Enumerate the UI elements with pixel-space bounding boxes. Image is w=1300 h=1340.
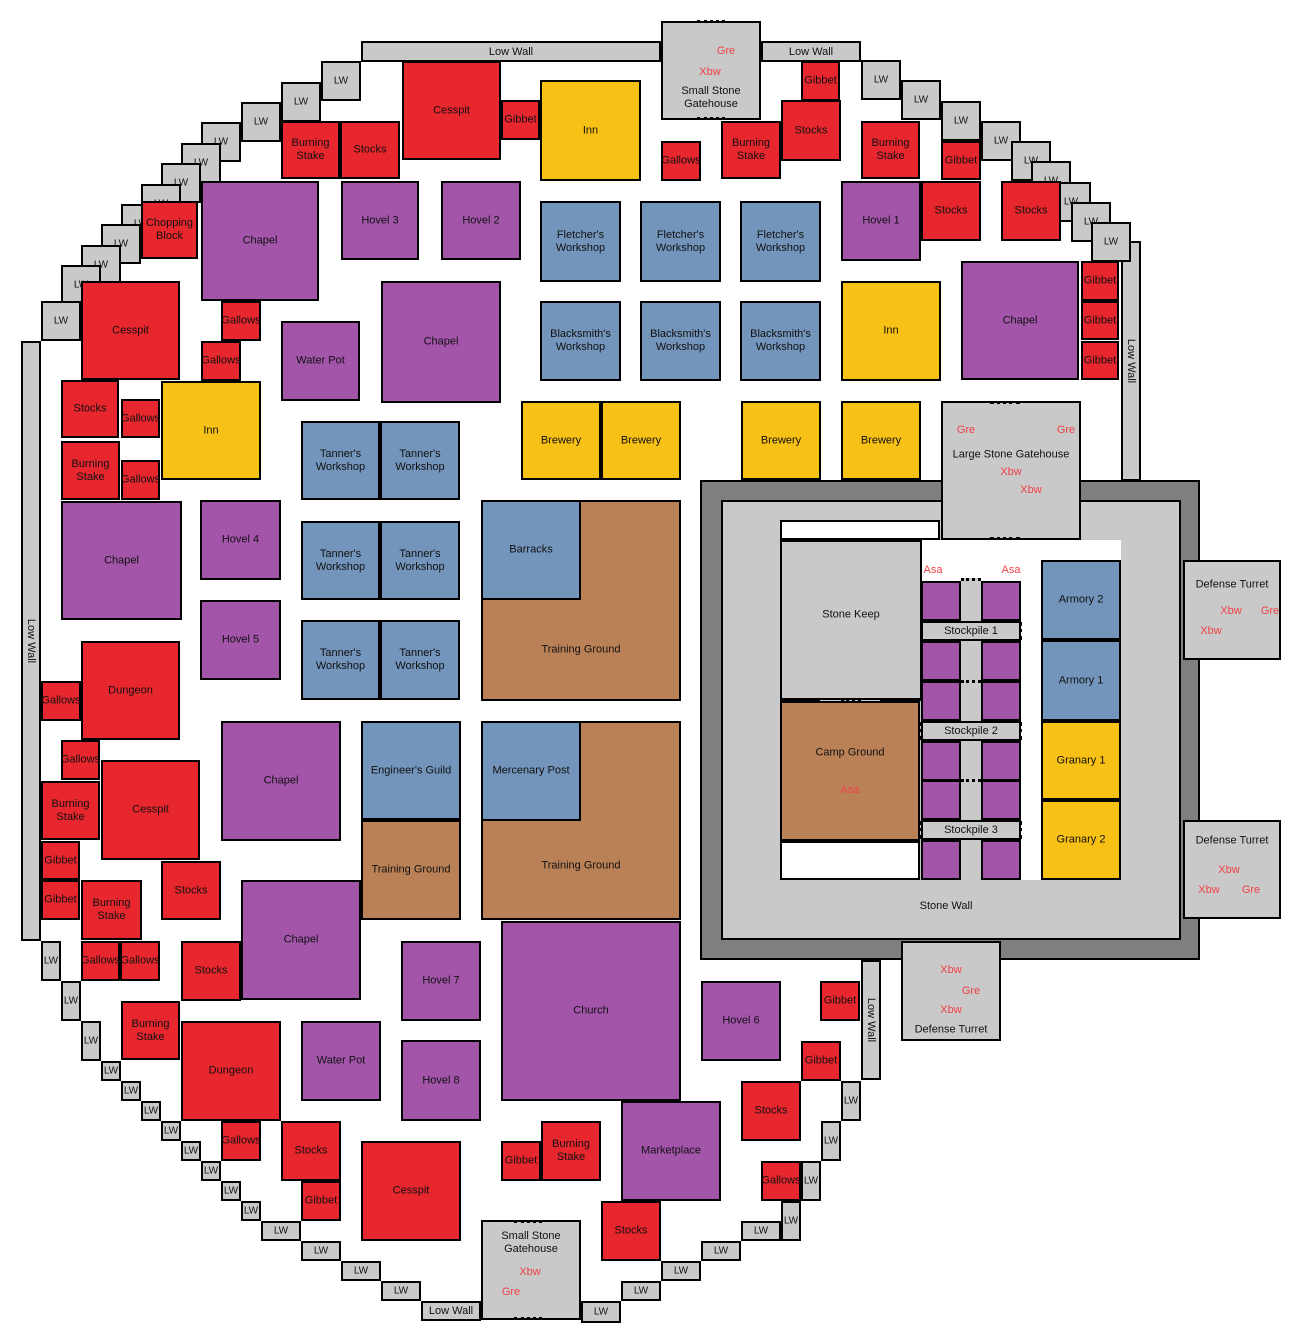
gibbet-label: Gibbet	[305, 1195, 337, 1208]
low-wall-bar[interactable]: Low Wall	[861, 960, 881, 1080]
gibbet-label: Gibbet	[504, 114, 536, 127]
tanner-s-workshop-label: Tanner's Workshop	[395, 548, 444, 574]
barracks[interactable]: Barracks	[481, 500, 581, 600]
tanner-s-workshop-label: Tanner's Workshop	[316, 548, 365, 574]
stockpile-band[interactable]: Stockpile 1	[921, 621, 1021, 641]
low-wall-tile-label: LW	[844, 1096, 858, 1107]
low-wall-tile[interactable]: LW	[621, 1281, 661, 1301]
fletcher-s-workshop[interactable]: Fletcher's Workshop	[640, 201, 721, 282]
large-stone-gatehouse-label: Large Stone Gatehouse	[953, 448, 1070, 461]
stockpile-square[interactable]	[921, 840, 961, 880]
brewery[interactable]: Brewery	[741, 401, 821, 480]
stocks[interactable]: Stocks	[161, 861, 221, 920]
low-wall-bar-label: Low Wall	[489, 46, 533, 58]
low-wall-tile-label: LW	[754, 1226, 768, 1237]
low-wall-tile-label: LW	[254, 117, 268, 128]
blacksmith-s-workshop[interactable]: Blacksmith's Workshop	[540, 301, 621, 381]
camp-ground[interactable]: Camp Ground	[780, 701, 920, 841]
chapel-label: Chapel	[243, 235, 278, 248]
gibbet[interactable]: Gibbet	[941, 141, 981, 180]
brewery[interactable]: Brewery	[601, 401, 681, 480]
low-wall-tile-label: LW	[594, 1307, 608, 1318]
low-wall-tile-label: LW	[64, 996, 78, 1007]
brewery-label: Brewery	[541, 434, 581, 447]
low-wall-bar[interactable]: Low Wall	[421, 1301, 481, 1321]
fletcher-s-workshop-label: Fletcher's Workshop	[756, 229, 805, 255]
hovel-3[interactable]: Hovel 3	[341, 181, 419, 260]
low-wall-tile[interactable]: LW	[1091, 222, 1131, 262]
cesspit-label: Cesspit	[112, 324, 149, 337]
hovel-6-label: Hovel 6	[722, 1015, 759, 1028]
stockpile-square[interactable]	[981, 741, 1021, 781]
low-wall-bar[interactable]: Low Wall	[361, 41, 661, 62]
low-wall-bar-label: Low Wall	[429, 1305, 473, 1317]
burning-stake[interactable]: Burning Stake	[281, 121, 340, 179]
burning-stake-label: Burning Stake	[72, 458, 110, 484]
mercenary-post[interactable]: Mercenary Post	[481, 721, 581, 821]
burning-stake[interactable]: Burning Stake	[81, 880, 142, 940]
low-wall-tile-label: LW	[784, 1216, 798, 1227]
low-wall-tile[interactable]: LW	[261, 1221, 301, 1241]
hovel-5-label: Hovel 5	[222, 634, 259, 647]
chapel[interactable]: Chapel	[61, 501, 182, 620]
stocks[interactable]: Stocks	[601, 1201, 661, 1261]
unit-label-asa: Asa	[841, 784, 860, 796]
dungeon[interactable]: Dungeon	[181, 1021, 281, 1121]
chapel-label: Chapel	[1003, 314, 1038, 327]
low-wall-tile[interactable]: LW	[81, 1021, 101, 1061]
unit-label-gre: Gre	[502, 1286, 520, 1298]
tanner-s-workshop[interactable]: Tanner's Workshop	[301, 521, 380, 600]
gallows[interactable]: Gallows	[201, 341, 241, 381]
gate-dotted-mark	[990, 537, 1020, 540]
tanner-s-workshop[interactable]: Tanner's Workshop	[380, 620, 460, 700]
gibbet-label: Gibbet	[1084, 275, 1116, 288]
gate-dotted-mark	[1019, 622, 1022, 640]
church-label: Church	[573, 1005, 608, 1018]
stocks-label: Stocks	[194, 965, 227, 978]
low-wall-tile[interactable]: LW	[141, 1101, 161, 1121]
unit-label-xbw: Xbw	[519, 1266, 540, 1278]
cesspit-label: Cesspit	[393, 1185, 430, 1198]
burning-stake-label: Burning Stake	[872, 137, 910, 163]
granary-1[interactable]: Granary 1	[1041, 721, 1121, 800]
stockpile-square[interactable]	[981, 641, 1021, 681]
armory-1[interactable]: Armory 1	[1041, 640, 1121, 721]
low-wall-tile-label: LW	[44, 956, 58, 967]
low-wall-tile-label: LW	[874, 75, 888, 86]
chopping-block-label: Chopping Block	[146, 217, 193, 243]
burning-stake-label: Burning Stake	[93, 897, 131, 923]
fletcher-s-workshop[interactable]: Fletcher's Workshop	[740, 201, 821, 282]
gibbet[interactable]: Gibbet	[820, 981, 860, 1021]
dungeon[interactable]: Dungeon	[81, 641, 180, 740]
defense-turret-label: Defense Turret	[1196, 579, 1269, 592]
gallows[interactable]: Gallows	[221, 301, 261, 341]
unit-label-xbw: Xbw	[940, 1004, 961, 1016]
gallows-label: Gallows	[221, 1135, 260, 1148]
low-wall-tile-label: LW	[354, 1266, 368, 1277]
low-wall-bar[interactable]: Low Wall	[761, 41, 861, 62]
low-wall-tile[interactable]: LW	[821, 1121, 841, 1161]
low-wall-tile[interactable]: LW	[241, 102, 281, 142]
inn[interactable]: Inn	[161, 381, 261, 480]
gallows-label: Gallows	[221, 315, 260, 328]
stockpile-square[interactable]	[981, 581, 1021, 621]
low-wall-tile-label: LW	[124, 1086, 138, 1097]
cesspit[interactable]: Cesspit	[361, 1141, 461, 1241]
mercenary-post-label: Mercenary Post	[492, 765, 569, 778]
courtyard-cutout	[780, 520, 940, 540]
gate-dotted-mark	[919, 821, 922, 839]
fletcher-s-workshop-label: Fletcher's Workshop	[656, 229, 705, 255]
hovel-8[interactable]: Hovel 8	[401, 1040, 481, 1121]
low-wall-tile-label: LW	[224, 1186, 238, 1197]
dungeon-label: Dungeon	[108, 684, 153, 697]
gibbet[interactable]: Gibbet	[1081, 341, 1119, 380]
gibbet-label: Gibbet	[1084, 354, 1116, 367]
low-wall-bar[interactable]: Low Wall	[21, 341, 41, 941]
hovel-2[interactable]: Hovel 2	[441, 181, 521, 260]
stockpile-band-label: Stockpile 3	[944, 824, 998, 836]
marketplace-label: Marketplace	[641, 1145, 701, 1158]
low-wall-tile[interactable]: LW	[381, 1281, 421, 1301]
gallows[interactable]: Gallows	[221, 1121, 261, 1161]
cesspit-label: Cesspit	[433, 104, 470, 117]
low-wall-tile[interactable]: LW	[301, 1241, 341, 1261]
brewery[interactable]: Brewery	[521, 401, 601, 480]
low-wall-tile[interactable]: LW	[941, 101, 981, 141]
tanner-s-workshop-label: Tanner's Workshop	[316, 448, 365, 474]
gibbet-label: Gibbet	[44, 894, 76, 907]
stockpile-band[interactable]: Stockpile 3	[921, 820, 1021, 840]
defense-turret[interactable]: Defense Turret	[901, 941, 1001, 1041]
inn[interactable]: Inn	[841, 281, 941, 381]
hovel-7[interactable]: Hovel 7	[401, 941, 481, 1021]
unit-label-asa: Asa	[924, 564, 943, 576]
hovel-4[interactable]: Hovel 4	[200, 500, 281, 580]
gallows-label: Gallows	[41, 695, 80, 708]
cesspit[interactable]: Cesspit	[81, 281, 180, 380]
defense-turret-label: Defense Turret	[915, 1024, 988, 1037]
stocks-label: Stocks	[73, 403, 106, 416]
stone-keep-label: Stone Keep	[822, 609, 880, 622]
unit-label-gre: Gre	[962, 985, 980, 997]
blacksmith-s-workshop[interactable]: Blacksmith's Workshop	[640, 301, 721, 381]
low-wall-bar-label: Low Wall	[789, 46, 833, 58]
stockpile-square[interactable]	[921, 681, 961, 721]
low-wall-tile[interactable]: LW	[321, 61, 361, 101]
stockpile-square[interactable]	[981, 840, 1021, 880]
fletcher-s-workshop-label: Fletcher's Workshop	[556, 229, 605, 255]
unit-label-xbw: Xbw	[1000, 466, 1021, 478]
blacksmith-s-workshop-label: Blacksmith's Workshop	[650, 328, 711, 354]
low-wall-tile[interactable]: LW	[341, 1261, 381, 1281]
gallows[interactable]: Gallows	[61, 740, 100, 780]
unit-label-xbw: Xbw	[1218, 864, 1239, 876]
low-wall-tile[interactable]: LW	[41, 941, 61, 981]
low-wall-tile[interactable]: LW	[701, 1241, 741, 1261]
low-wall-tile[interactable]: LW	[121, 1081, 141, 1101]
brewery-label: Brewery	[761, 434, 801, 447]
low-wall-bar-label: Low Wall	[25, 619, 37, 663]
water-pot[interactable]: Water Pot	[281, 321, 360, 401]
stone-wall-label: Stone Wall	[920, 900, 973, 912]
camp-ground-label: Camp Ground	[815, 747, 884, 760]
stocks[interactable]: Stocks	[741, 1081, 801, 1141]
gibbet[interactable]: Gibbet	[41, 880, 80, 920]
burning-stake[interactable]: Burning Stake	[721, 121, 781, 179]
gibbet[interactable]: Gibbet	[801, 1041, 841, 1081]
gibbet[interactable]: Gibbet	[801, 61, 840, 101]
water-pot-label: Water Pot	[317, 1055, 366, 1068]
stocks[interactable]: Stocks	[921, 181, 981, 241]
stocks[interactable]: Stocks	[181, 941, 241, 1001]
stocks-label: Stocks	[794, 124, 827, 137]
gibbet[interactable]: Gibbet	[501, 1141, 541, 1181]
stockpile-square[interactable]	[981, 681, 1021, 721]
low-wall-tile[interactable]: LW	[581, 1301, 621, 1323]
unit-label-xbw: Xbw	[699, 66, 720, 78]
armory-1-label: Armory 1	[1059, 674, 1104, 687]
burning-stake-label: Burning Stake	[552, 1138, 590, 1164]
blacksmith-s-workshop[interactable]: Blacksmith's Workshop	[740, 301, 821, 381]
stocks-label: Stocks	[614, 1225, 647, 1238]
gallows-label: Gallows	[661, 155, 700, 168]
training-ground[interactable]: Training Ground	[361, 820, 461, 920]
low-wall-bar[interactable]: Low Wall	[1121, 241, 1141, 481]
burning-stake[interactable]: Burning Stake	[61, 441, 120, 500]
stocks[interactable]: Stocks	[281, 1121, 341, 1181]
chopping-block[interactable]: Chopping Block	[141, 201, 198, 259]
courtyard-cutout	[921, 540, 1121, 560]
inn-label: Inn	[583, 124, 598, 137]
gate-dotted-mark	[697, 20, 725, 23]
low-wall-tile-label: LW	[274, 1226, 288, 1237]
inn[interactable]: Inn	[540, 80, 641, 181]
cesspit[interactable]: Cesspit	[402, 61, 501, 160]
stockpile-band-label: Stockpile 2	[944, 725, 998, 737]
gate-dotted-mark	[961, 779, 981, 782]
granary-1-label: Granary 1	[1057, 754, 1106, 767]
small-stone-gatehouse-label: Small Stone Gatehouse	[501, 1230, 560, 1256]
engineer-s-guild[interactable]: Engineer's Guild	[361, 721, 461, 820]
unit-label-gre: Gre	[1057, 424, 1075, 436]
stocks-label: Stocks	[754, 1105, 787, 1118]
engineer-s-guild-label: Engineer's Guild	[371, 764, 451, 777]
unit-label-xbw: Xbw	[1020, 484, 1041, 496]
low-wall-tile[interactable]: LW	[741, 1221, 781, 1241]
chapel-label: Chapel	[104, 554, 139, 567]
burning-stake[interactable]: Burning Stake	[861, 121, 920, 179]
unit-label-xbw: Xbw	[1200, 625, 1221, 637]
low-wall-tile[interactable]: LW	[181, 1141, 201, 1161]
low-wall-tile[interactable]: LW	[241, 1201, 261, 1221]
gate-dotted-mark	[961, 578, 981, 581]
low-wall-tile[interactable]: LW	[841, 1081, 861, 1121]
gallows[interactable]: Gallows	[120, 941, 160, 981]
armory-2[interactable]: Armory 2	[1041, 560, 1121, 640]
gate-dotted-mark	[841, 699, 861, 702]
hovel-4-label: Hovel 4	[222, 534, 259, 547]
burning-stake-label: Burning Stake	[132, 1018, 170, 1044]
church[interactable]: Church	[501, 921, 681, 1101]
brewery-label: Brewery	[621, 434, 661, 447]
water-pot[interactable]: Water Pot	[301, 1021, 381, 1101]
stockpile-square[interactable]	[921, 741, 961, 781]
cesspit[interactable]: Cesspit	[101, 760, 200, 860]
gallows-label: Gallows	[201, 355, 240, 368]
hovel-5[interactable]: Hovel 5	[200, 600, 281, 680]
fletcher-s-workshop[interactable]: Fletcher's Workshop	[540, 201, 621, 282]
stocks-label: Stocks	[1014, 205, 1047, 218]
gibbet[interactable]: Gibbet	[41, 841, 80, 880]
burning-stake-label: Burning Stake	[292, 137, 330, 163]
low-wall-tile[interactable]: LW	[781, 1201, 801, 1241]
gate-dotted-mark	[514, 1220, 542, 1223]
inn-label: Inn	[883, 325, 898, 338]
marketplace[interactable]: Marketplace	[621, 1101, 721, 1201]
tanner-s-workshop-label: Tanner's Workshop	[395, 647, 444, 673]
stocks-label: Stocks	[174, 884, 207, 897]
low-wall-tile[interactable]: LW	[281, 82, 321, 122]
burning-stake[interactable]: Burning Stake	[541, 1121, 601, 1181]
unit-label-gre: Gre	[1242, 884, 1260, 896]
gate-dotted-mark	[1019, 821, 1022, 839]
chapel[interactable]: Chapel	[201, 181, 319, 301]
stockpile-band[interactable]: Stockpile 2	[921, 721, 1021, 741]
gallows[interactable]: Gallows	[661, 141, 701, 181]
low-wall-tile[interactable]: LW	[801, 1161, 821, 1201]
low-wall-bar-label: Low Wall	[865, 998, 877, 1042]
chapel-label: Chapel	[264, 775, 299, 788]
gibbet-label: Gibbet	[44, 854, 76, 867]
unit-label-xbw: Xbw	[940, 964, 961, 976]
stocks[interactable]: Stocks	[340, 121, 400, 179]
stocks[interactable]: Stocks	[781, 100, 841, 161]
unit-label-gre: Gre	[717, 45, 735, 57]
low-wall-tile[interactable]: LW	[161, 1121, 181, 1141]
chapel[interactable]: Chapel	[381, 281, 501, 403]
stone-keep[interactable]: Stone Keep	[780, 540, 922, 700]
chapel-label: Chapel	[424, 336, 459, 349]
low-wall-tile-label: LW	[714, 1246, 728, 1257]
low-wall-tile-label: LW	[394, 1286, 408, 1297]
gallows[interactable]: Gallows	[121, 460, 160, 500]
hovel-3-label: Hovel 3	[361, 214, 398, 227]
gibbet[interactable]: Gibbet	[1081, 301, 1119, 340]
stocks[interactable]: Stocks	[61, 380, 119, 438]
chapel[interactable]: Chapel	[241, 880, 361, 1000]
gallows[interactable]: Gallows	[41, 681, 81, 721]
tanner-s-workshop[interactable]: Tanner's Workshop	[380, 521, 460, 600]
barracks-label: Barracks	[509, 544, 552, 557]
low-wall-bar-label: Low Wall	[1125, 339, 1137, 383]
hovel-7-label: Hovel 7	[422, 975, 459, 988]
stockpile-band-label: Stockpile 1	[944, 625, 998, 637]
hovel-8-label: Hovel 8	[422, 1074, 459, 1087]
courtyard-cutout	[780, 841, 920, 880]
low-wall-tile-label: LW	[994, 136, 1008, 147]
low-wall-tile[interactable]: LW	[661, 1261, 701, 1281]
courtyard-cutout	[1021, 560, 1041, 880]
low-wall-tile-label: LW	[184, 1146, 198, 1157]
low-wall-tile[interactable]: LW	[221, 1181, 241, 1201]
stocks[interactable]: Stocks	[1001, 181, 1061, 241]
burning-stake-label: Burning Stake	[732, 137, 770, 163]
armory-2-label: Armory 2	[1059, 594, 1104, 607]
low-wall-tile[interactable]: LW	[901, 80, 941, 120]
low-wall-tile-label: LW	[294, 97, 308, 108]
low-wall-tile[interactable]: LW	[61, 981, 81, 1021]
hovel-6[interactable]: Hovel 6	[701, 981, 781, 1061]
hovel-1[interactable]: Hovel 1	[841, 181, 921, 261]
low-wall-tile-label: LW	[144, 1106, 158, 1117]
stocks-label: Stocks	[353, 144, 386, 157]
gallows[interactable]: Gallows	[761, 1161, 801, 1201]
burning-stake-label: Burning Stake	[52, 798, 90, 824]
low-wall-tile-label: LW	[54, 316, 68, 327]
brewery-label: Brewery	[861, 434, 901, 447]
gibbet-label: Gibbet	[505, 1155, 537, 1168]
burning-stake[interactable]: Burning Stake	[121, 1001, 180, 1060]
low-wall-tile[interactable]: LW	[41, 301, 81, 341]
stockpile-square[interactable]	[981, 780, 1021, 820]
gallows-label: Gallows	[121, 474, 160, 487]
low-wall-tile-label: LW	[244, 1206, 258, 1217]
granary-2[interactable]: Granary 2	[1041, 800, 1121, 880]
low-wall-tile-label: LW	[164, 1126, 178, 1137]
gibbet[interactable]: Gibbet	[301, 1181, 341, 1221]
brewery[interactable]: Brewery	[841, 401, 921, 480]
tanner-s-workshop[interactable]: Tanner's Workshop	[380, 421, 460, 500]
low-wall-tile-label: LW	[1104, 237, 1118, 248]
gibbet-label: Gibbet	[1084, 314, 1116, 327]
low-wall-tile[interactable]: LW	[201, 1161, 221, 1181]
training-ground-label: Training Ground	[541, 643, 620, 656]
low-wall-tile-label: LW	[804, 1176, 818, 1187]
chapel[interactable]: Chapel	[961, 261, 1079, 380]
burning-stake[interactable]: Burning Stake	[41, 781, 100, 840]
low-wall-tile-label: LW	[824, 1136, 838, 1147]
tanner-s-workshop-label: Tanner's Workshop	[316, 647, 365, 673]
low-wall-tile-label: LW	[634, 1286, 648, 1297]
stockpile-square[interactable]	[921, 780, 961, 820]
inn-label: Inn	[203, 424, 218, 437]
low-wall-tile-label: LW	[104, 1066, 118, 1077]
gallows-label: Gallows	[120, 955, 159, 968]
chapel[interactable]: Chapel	[221, 721, 341, 841]
gibbet[interactable]: Gibbet	[501, 100, 540, 140]
stocks-label: Stocks	[294, 1145, 327, 1158]
gibbet[interactable]: Gibbet	[1081, 261, 1119, 301]
gibbet-label: Gibbet	[804, 75, 836, 88]
low-wall-tile-label: LW	[204, 1166, 218, 1177]
training-ground-label: Training Ground	[371, 864, 450, 877]
stockpile-square[interactable]	[921, 581, 961, 621]
tanner-s-workshop[interactable]: Tanner's Workshop	[301, 620, 380, 700]
small-stone-gatehouse-label: Small Stone Gatehouse	[681, 85, 740, 111]
low-wall-tile[interactable]: LW	[101, 1061, 121, 1081]
gallows[interactable]: Gallows	[121, 399, 160, 438]
low-wall-tile[interactable]: LW	[861, 60, 901, 100]
tanner-s-workshop[interactable]: Tanner's Workshop	[301, 421, 380, 500]
low-wall-tile-label: LW	[334, 76, 348, 87]
gallows[interactable]: Gallows	[81, 941, 120, 981]
stockpile-square[interactable]	[921, 641, 961, 681]
gate-dotted-mark	[514, 1317, 542, 1320]
gate-dotted-mark	[919, 722, 922, 740]
